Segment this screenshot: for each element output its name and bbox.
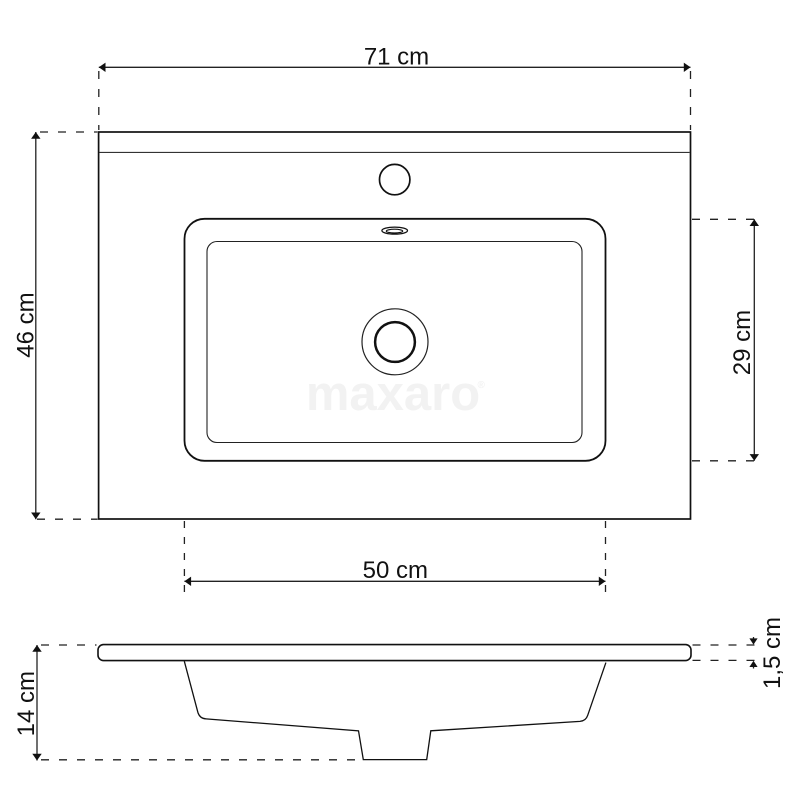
svg-text:71 cm: 71 cm: [364, 44, 429, 71]
svg-text:1,5 cm: 1,5 cm: [759, 617, 786, 689]
svg-text:14 cm: 14 cm: [13, 671, 40, 736]
svg-text:46 cm: 46 cm: [13, 292, 40, 357]
svg-text:®: ®: [478, 380, 486, 391]
svg-text:29 cm: 29 cm: [729, 310, 756, 375]
svg-text:50 cm: 50 cm: [363, 557, 428, 584]
